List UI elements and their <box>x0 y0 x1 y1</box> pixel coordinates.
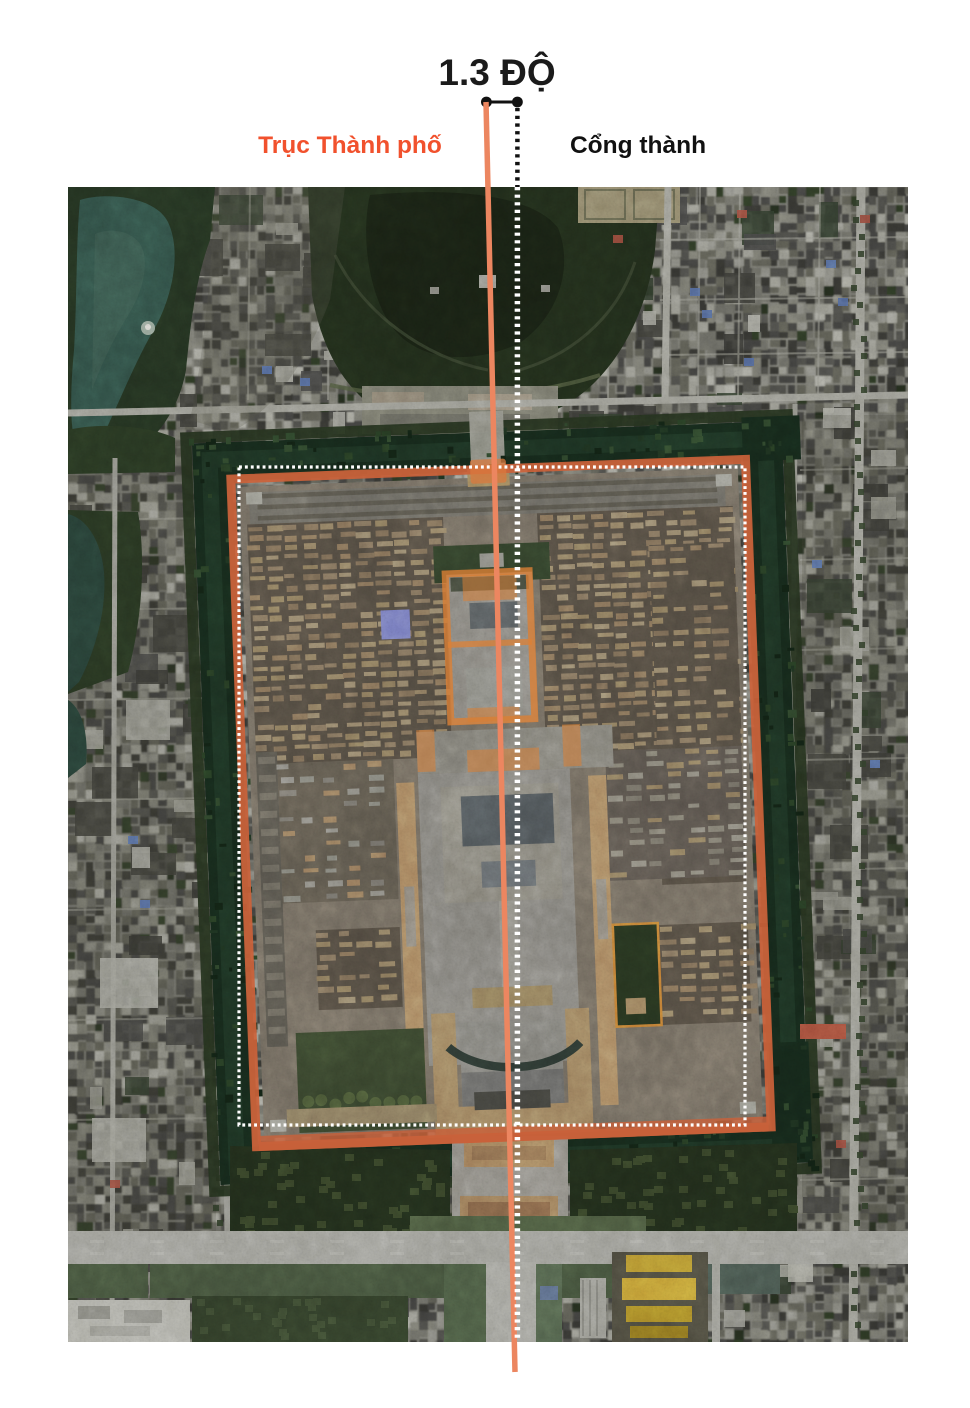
svg-text:Trục Thành phố: Trục Thành phố <box>258 132 442 159</box>
svg-text:1.3 ĐỘ: 1.3 ĐỘ <box>438 51 555 93</box>
svg-text:Cổng thành: Cổng thành <box>570 132 706 159</box>
